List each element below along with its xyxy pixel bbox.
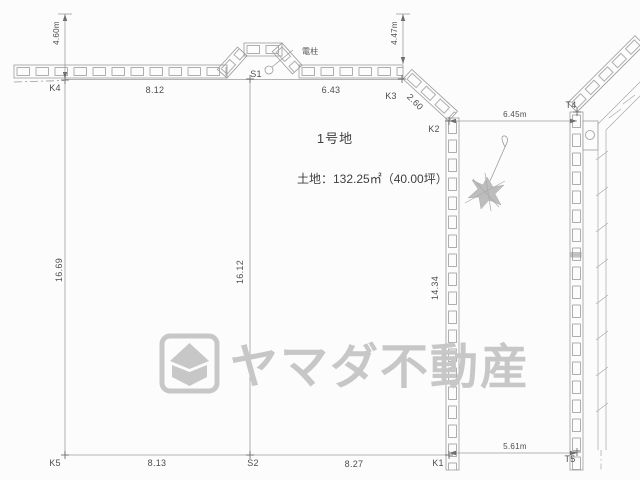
utility-pole-label: 電柱 [302,46,319,56]
dim-label-west: 16.69 [54,258,64,282]
survey-plot-page: K4 8.12 S1 電柱 6.43 K3 2.60 K2 T4 6.45m 4… [0,0,640,480]
dim-label-road-width-right: 4.47m [390,21,399,45]
point-label-t5: T5 [564,454,575,464]
dim-label-bottom-right: 8.27 [345,459,364,469]
block-wall-east-inner [446,118,459,470]
watermark: ヤマダ不動産 [162,336,530,394]
point-label-s1: S1 [250,69,262,79]
dim-label-road-top: 6.45m [503,110,527,119]
block-wall-north [14,43,457,121]
dim-label-east: 14.34 [430,276,440,300]
point-label-k2: K2 [428,124,440,134]
dimension-road-bottom [449,451,577,455]
watermark-company-name: ヤマダ不動産 [230,341,530,394]
utility-pole-east [583,121,598,150]
dimension-road-top [449,119,577,123]
point-label-s2: S2 [247,458,259,468]
company-logo-icon [162,336,217,391]
point-label-t4: T4 [565,100,576,110]
lot-area: 土地：132.25㎡（40.00坪） [297,172,448,186]
dim-label-top-left: 8.12 [146,85,165,95]
tree-symbol [465,136,508,211]
point-label-k4: K4 [49,83,61,93]
dim-label-road-width-left: 4.60m [52,21,61,45]
point-label-k5: K5 [49,458,61,468]
block-wall-northeast-diagonal [568,36,640,112]
lot-name: 1号地 [317,131,353,146]
point-label-k3: K3 [385,91,397,101]
point-label-k1: K1 [432,458,444,468]
block-wall-east-outer [570,112,583,470]
dim-label-center: 16.12 [235,260,245,284]
wall-joint-mark [571,252,582,258]
dim-label-top-right: 6.43 [322,85,341,95]
pole-circle-icon [265,66,273,74]
dim-label-bottom-left: 8.13 [148,458,167,468]
lot-boundaries [14,78,449,455]
land-survey-drawing: K4 8.12 S1 電柱 6.43 K3 2.60 K2 T4 6.45m 4… [0,0,640,480]
dim-label-road-bottom: 5.61m [503,442,527,451]
edge-strip-east [596,77,640,472]
